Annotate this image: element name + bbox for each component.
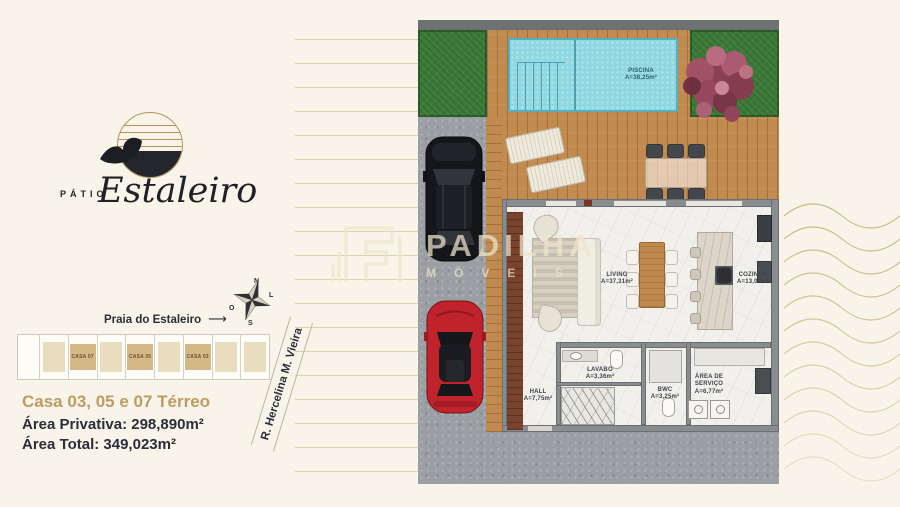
entry-door-opening — [528, 426, 552, 431]
pool-lane-divider — [574, 40, 576, 110]
floorplan-page: PÁTIO Estaleiro N L O S Praia do Estalei… — [0, 0, 900, 507]
lavabo-label: LAVABOA=3,36m² — [570, 364, 630, 384]
piscina-label: PISCINAA=38,25m² — [606, 64, 676, 86]
private-area-text: Área Privativa: 298,890m² — [22, 415, 282, 435]
brand-logo: PÁTIO Estaleiro — [60, 105, 260, 225]
black-suv-car — [423, 133, 485, 265]
plan-info: Casa 03, 05 e 07 Térreo Área Privativa: … — [22, 392, 282, 455]
compass-east: L — [269, 292, 274, 299]
site-lot-casa-07: CASA 07 — [69, 335, 98, 379]
tree-icon — [670, 34, 766, 132]
laundry-counter — [694, 348, 765, 366]
storage-cabinet — [755, 368, 771, 394]
lavabo-sink — [570, 352, 582, 360]
patio-chair — [668, 145, 683, 157]
dining-chair — [626, 294, 639, 309]
sliding-door-opening — [546, 201, 576, 206]
dining-chair — [626, 250, 639, 265]
site-lot — [155, 335, 184, 379]
compass-rose-icon: N L O S — [228, 274, 276, 326]
site-lot — [98, 335, 127, 379]
site-lot-casa-03: CASA 03 — [184, 335, 213, 379]
hall-label: HALLA=7,75m² — [518, 386, 558, 406]
dining-chair — [665, 272, 678, 287]
pinstripe-decoration — [295, 16, 418, 478]
site-lot-casa-05: CASA 05 — [126, 335, 155, 379]
top-boundary-wall — [418, 20, 779, 30]
bar-stool — [690, 291, 701, 302]
bar-stool — [690, 269, 701, 280]
total-area-text: Área Total: 349,023m² — [22, 435, 282, 455]
bwc-label: BWCA=3,25m² — [644, 384, 686, 404]
dryer — [710, 400, 730, 419]
washer — [688, 400, 708, 419]
staircase — [561, 387, 615, 425]
entry-walkway — [486, 117, 502, 432]
brand-script: Estaleiro — [98, 171, 257, 211]
floor-plan: PISCINAA=38,25m² — [418, 20, 779, 484]
sliding-door-opening — [614, 201, 666, 206]
patio-chair — [689, 145, 704, 157]
dining-chair — [665, 250, 678, 265]
site-lot — [40, 335, 69, 379]
grass-left — [418, 30, 487, 117]
arrow-right-icon: ⟶ — [208, 312, 227, 327]
door-frame — [584, 200, 592, 206]
shower — [649, 350, 682, 383]
sidewalk — [418, 432, 779, 484]
site-plan: CASA 07 CASA 05 CASA 03 — [17, 334, 270, 380]
site-lot — [213, 335, 242, 379]
beach-label: Praia do Estaleiro — [104, 314, 201, 326]
sliding-door-opening — [686, 201, 742, 206]
servico-label: ÁREA DE SERVIÇOA=6,77m² — [684, 370, 734, 400]
bar-stool — [690, 313, 701, 324]
casa-05-label: CASA 05 — [127, 344, 153, 370]
house-wall-right — [771, 199, 779, 432]
cooktop — [715, 266, 733, 285]
refrigerator — [757, 215, 772, 242]
wave-decoration — [784, 198, 900, 484]
patio-table — [645, 158, 707, 188]
whale-tail-icon — [98, 133, 146, 169]
compass-north: N — [254, 278, 259, 285]
casa-07-label: CASA 07 — [70, 344, 96, 370]
cozinha-label: COZINHAA=13,07m² — [732, 268, 774, 290]
living-label: LIVINGA=37,31m² — [587, 268, 647, 290]
floorplan-title: Casa 03, 05 e 07 Térreo — [22, 392, 282, 412]
pool: PISCINAA=38,25m² — [508, 38, 678, 112]
patio-chair — [647, 145, 662, 157]
casa-03-label: CASA 03 — [185, 344, 211, 370]
site-lot — [241, 335, 269, 379]
bar-stool — [690, 247, 701, 258]
dining-chair — [665, 294, 678, 309]
red-sports-car — [424, 298, 486, 416]
site-lot-empty — [18, 335, 40, 379]
compass-south: S — [248, 320, 253, 326]
beach-direction: Praia do Estaleiro ⟶ — [104, 312, 227, 327]
pool-steps — [517, 62, 565, 110]
compass-west: O — [229, 305, 235, 312]
